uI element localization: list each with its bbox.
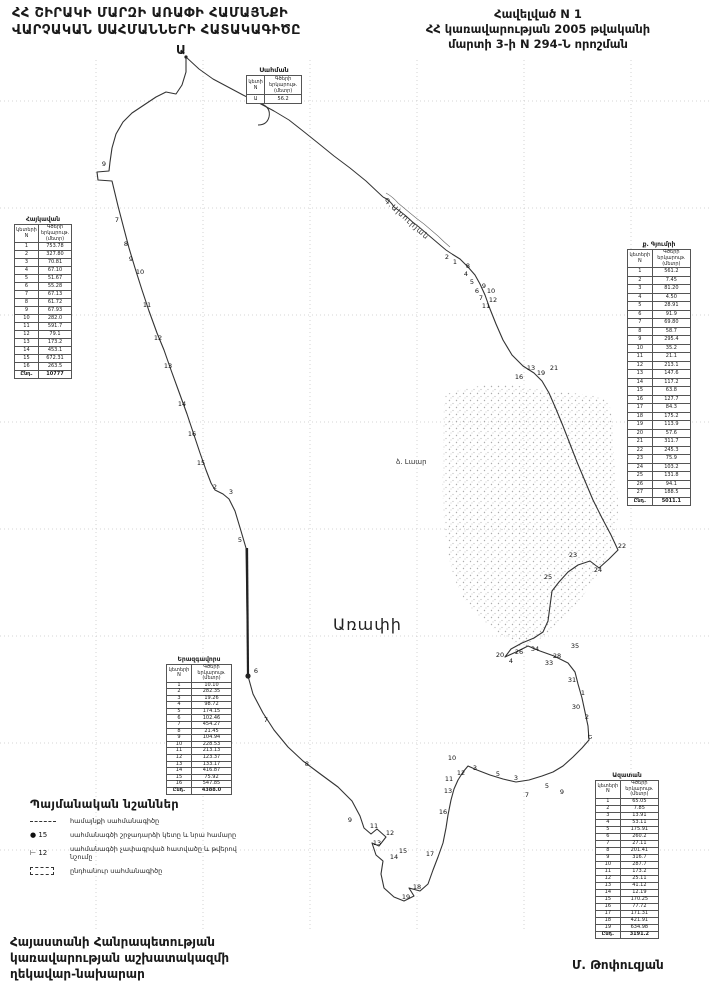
coords-table-southeast: Ազատանկետերի NԳծերի երկարութ. (մետր)165.… [595,772,659,939]
cell-point-number: 22 [628,446,653,455]
table-row: 27.85 [596,805,659,812]
cell-line-length: 7.85 [620,805,658,812]
cell-point-number: 14 [15,347,39,355]
cell-line-length: 170.25 [620,896,658,903]
cell-total-value: 4388.0 [191,788,231,795]
cell-total-value: 10777 [38,371,71,379]
table-row: 9295.4 [628,336,691,345]
col-line-length: Գծերի երկարութ. (մետր) [620,781,658,799]
cell-point-number: 17 [596,910,621,917]
cell-line-length: 173.2 [38,339,71,347]
table-row: 1341.12 [596,882,659,889]
community-name-label: Առափի [333,615,402,634]
cell-line-length: 58.7 [652,327,690,336]
table-row: 8201.41 [596,847,659,854]
lake-label: ձ. Լաար [396,458,427,466]
cell-point-number: 7 [596,840,621,847]
table-row: 2057.6 [628,429,691,438]
table-header-row: կետերի NԳծերի երկարութ. (մետր) [596,781,659,799]
cell-line-length: 753.78 [38,243,71,251]
cell-line-length: 67.93 [38,307,71,315]
legend-item-label: սահմանագծի չափագրված հատվածը և թվերով նշ… [70,845,255,861]
cell-point-number: 27 [628,489,653,498]
stipple-area [443,385,618,648]
cell-line-length: 311.7 [652,438,690,447]
cell-point-number: 6 [628,310,653,319]
cell-point-number: 7 [15,291,39,299]
coords-table-east: ք. Գյումրիկետերի NԳծերի երկարութ. (մետր)… [627,241,691,506]
cell-line-length: 131.8 [652,472,690,481]
cell-line-length: 27.11 [620,840,658,847]
cell-line-length: 67.10 [38,267,71,275]
cell-point-number: 14 [628,378,653,387]
table-row: 467.10 [15,267,72,275]
cell-point-number: 1 [628,268,653,277]
cell-total-value: 3191.2 [620,931,658,938]
cell-line-length: 634.98 [620,924,658,931]
cell-line-length: 174.15 [191,708,231,715]
cell-point-number: 10 [628,344,653,353]
legend-item-label: սահմանագծի շրջադարձի կետը և նրա համարը [70,831,236,839]
cell-line-length: 188.5 [652,489,690,498]
cell-point-number: 3 [596,812,621,819]
cell-line-length: 287.7 [620,861,658,868]
signature-name: Մ. Թոփուզյան [572,958,664,972]
cell-line-length: 35.2 [652,344,690,353]
cell-line-length: 672.31 [38,355,71,363]
coords-table-southwest: Երազգավորսկետերի NԳծերի երկարութ. (մետր)… [166,656,232,795]
cell-line-length: 147.6 [652,370,690,379]
cell-point-number: 5 [628,302,653,311]
table-row: 27.45 [628,276,691,285]
cell-point-number: 11 [15,323,39,331]
annex-line1: Հավելված N 1 [372,7,704,22]
cell-line-length: 127.7 [652,395,690,404]
table-row: 15170.25 [596,896,659,903]
cell-line-length: 75.9 [652,455,690,464]
cell-point-number: 15 [15,355,39,363]
table-row: 5175.91 [596,826,659,833]
cell-point-number: 7 [628,319,653,328]
table-row: 27188.5 [628,489,691,498]
cell-point-number: 17 [628,404,653,413]
table-row: 1225.11 [596,875,659,882]
table-row: 1412.19 [596,889,659,896]
cell-line-length: 263.5 [38,363,71,371]
start-point-label: Ա [176,43,186,57]
cell-line-length: 453.1 [38,347,71,355]
table-row: 858.7 [628,327,691,336]
table-row: 21311.7 [628,438,691,447]
table-row: 967.93 [15,307,72,315]
table-header-row: կետի NԳծերի երկարութ. (մետր) [247,76,302,95]
col-point-number: կետի N [247,76,265,95]
cell-point-number: 24 [628,463,653,472]
table-title: Սահման [246,66,302,74]
cell-line-length: 91.9 [652,310,690,319]
footer-line1: Հայաստանի Հանրապետության [10,934,229,950]
table-row: 13173.2 [15,339,72,347]
cell-line-length: 13.91 [620,812,658,819]
cell-point-number: 5 [596,826,621,833]
table-row: 1563.8 [628,387,691,396]
cell-line-length: 51.67 [38,275,71,283]
table-row: 14453.1 [15,347,72,355]
cell-point-number: 14 [596,889,621,896]
table-row: 44.50 [628,293,691,302]
cell-line-length: 94.1 [652,480,690,489]
table-row: 12213.1 [628,361,691,370]
table-row: 691.9 [628,310,691,319]
table-row: 25131.8 [628,472,691,481]
legend-item-label: ընդհանուր սահմանագիծը [70,867,162,875]
cell-point-number: 1 [596,798,621,805]
page-title-line2: ՎԱՐՉԱԿԱՆ ՍԱՀՄԱՆՆԵՐԻ ՀԱՏԱԿԱԳԻԾԸ [12,22,301,39]
cell-point-number: 3 [15,259,39,267]
table-row: 1279.1 [15,331,72,339]
table-row: 14117.2 [628,378,691,387]
table-row: 24103.2 [628,463,691,472]
table-row: 11591.7 [15,323,72,331]
table-row: Ա56.2 [247,95,302,104]
cell-line-length: 561.2 [652,268,690,277]
table-row: 1677.72 [596,903,659,910]
col-point-number: կետերի N [15,225,39,243]
cell-point-number: 12 [596,875,621,882]
legend-item: ● 15սահմանագծի շրջադարձի կետը և նրա համա… [30,831,255,839]
cell-line-length: 67.13 [38,291,71,299]
table-row: 2375.9 [628,455,691,464]
col-line-length: Գծերի երկարութ. (մետր) [191,665,231,683]
cell-point-number: 10 [15,315,39,323]
footer-line2: կառավարության աշխատակազմի [10,950,229,966]
cell-total-label: Ընդ. [15,371,39,379]
legend-item: ընդհանուր սահմանագիծը [30,867,255,875]
legend-item: համայնքի սահմանագիծը [30,817,255,825]
table-row: 5174.15 [167,708,232,715]
cell-point-number: 10 [596,861,621,868]
cell-line-length: 113.9 [652,421,690,430]
table-header-row: կետերի NԳծերի երկարութ. (մետր) [15,225,72,243]
thick-segment [247,548,248,676]
cell-line-length: 63.8 [652,387,690,396]
table-row: 2282.35 [167,689,232,696]
coords-table-west: Հայկավանկետերի NԳծերի երկարութ. (մետր)17… [14,216,72,379]
cell-line-length: 103.2 [652,463,690,472]
node-blob [245,673,250,678]
cell-point-number: 8 [596,847,621,854]
table-row: 1035.2 [628,344,691,353]
cell-total-label: Ընդ. [628,497,653,506]
table-row: 10282.0 [15,315,72,323]
cell-point-number: 15 [596,896,621,903]
col-point-number: կետերի N [596,781,621,799]
cell-point-number: 16 [596,903,621,910]
cell-point-number: 8 [628,327,653,336]
cell-point-number: 13 [628,370,653,379]
point-symbol: ⊢ 12 [30,849,64,857]
table-row: 370.81 [15,259,72,267]
cell-line-length: 295.4 [652,336,690,345]
footer-line3: ղեկավար-նախարար [10,966,229,982]
page-title: ՀՀ ՇԻՐԱԿԻ ՄԱՐԶԻ ԱՌԱՓԻ ՀԱՄԱՅՆՔԻ ՎԱՐՉԱԿԱՆ … [12,5,301,39]
page-title-line1: ՀՀ ՇԻՐԱԿԻ ՄԱՐԶԻ ԱՌԱՓԻ ՀԱՄԱՅՆՔԻ [12,5,301,22]
annex-line3: մարտի 3-ի N 294-Ն որոշման [372,37,704,52]
cell-line-length: 69.80 [652,319,690,328]
table-row: 16127.7 [628,395,691,404]
cell-line-length: 117.2 [652,378,690,387]
cell-line-length: 245.3 [652,446,690,455]
cell-line-length: 53.11 [620,819,658,826]
table-row: 15672.31 [15,355,72,363]
cell-line-length: 316.7 [620,854,658,861]
cell-line-length: 84.3 [652,404,690,413]
table-row: 769.80 [628,319,691,328]
table-row: 2694.1 [628,480,691,489]
table-row: 551.67 [15,275,72,283]
table-row: 1561.2 [628,268,691,277]
col-line-length: Գծերի երկարութ. (մետր) [652,250,690,268]
cell-line-length: 171.31 [620,910,658,917]
cell-point-number: 6 [15,283,39,291]
annex-reference: Հավելված N 1 ՀՀ կառավարության 2005 թվակա… [372,7,704,52]
cell-point-number: Ա [247,95,265,104]
cell-point-number: 15 [628,387,653,396]
cell-point-number: 4 [596,819,621,826]
cell-line-length: 21.1 [652,353,690,362]
cell-line-length: 77.72 [620,903,658,910]
cell-point-number: 13 [15,339,39,347]
cell-point-number: 4 [15,267,39,275]
cell-point-number: 4 [628,293,653,302]
cell-point-number: 20 [628,429,653,438]
cell-line-length: 56.2 [265,95,302,104]
cell-point-number: 13 [596,882,621,889]
table-row: 381.20 [628,285,691,294]
table-row: 861.72 [15,299,72,307]
cell-line-length: 213.1 [652,361,690,370]
col-point-number: կետերի N [167,665,192,683]
legend-item-label: համայնքի սահմանագիծը [70,817,159,825]
table-row: 655.28 [15,283,72,291]
table-row: 453.11 [596,819,659,826]
cell-point-number: 2 [596,805,621,812]
table-row: 13147.6 [628,370,691,379]
table-row: 6102.46 [167,715,232,722]
table-row: 165.05 [596,798,659,805]
cell-line-length: 81.20 [652,285,690,294]
legend-title: Պայմանական նշաններ [30,797,255,811]
col-line-length: Գծերի երկարութ. (մետր) [265,76,302,95]
annex-line2: ՀՀ կառավարության 2005 թվականի [372,22,704,37]
table-row: 16263.5 [15,363,72,371]
boundary-line-symbol [30,821,64,822]
table-title: Ազատան [595,772,659,779]
cell-point-number: 18 [628,412,653,421]
table-row: 7454.27 [167,722,232,729]
cell-line-length: 282.0 [38,315,71,323]
legend-items: համայնքի սահմանագիծը● 15սահմանագծի շրջադ… [30,817,255,875]
table-total-row: Ընդ.10777 [15,371,72,379]
cell-line-length: 61.72 [38,299,71,307]
table-row: 2327.80 [15,251,72,259]
cell-point-number: 11 [628,353,653,362]
table-row: 313.91 [596,812,659,819]
cell-point-number: 1 [15,243,39,251]
table-row: 11173.2 [596,868,659,875]
cell-line-length: 175.91 [620,826,658,833]
cell-line-length: 421.91 [620,917,658,924]
table-row: 1121.1 [628,353,691,362]
cell-point-number: 12 [628,361,653,370]
cell-total-label: Ընդ. [596,931,621,938]
table-row: 19113.9 [628,421,691,430]
cell-point-number: 16 [628,395,653,404]
legend-item: ⊢ 12սահմանագծի չափագրված հատվածը և թվերո… [30,845,255,861]
table-row: 17171.31 [596,910,659,917]
col-line-length: Գծերի երկարութ. (մետր) [38,225,71,243]
table-row: 19634.98 [596,924,659,931]
cell-point-number: 23 [628,455,653,464]
table-row: 319.26 [167,695,232,702]
cell-point-number: 3 [628,285,653,294]
table-title: ք. Գյումրի [627,241,691,248]
cell-line-length: 57.6 [652,429,690,438]
table-title: Երազգավորս [166,656,232,663]
cell-point-number: 2 [15,251,39,259]
cell-line-length: 327.80 [38,251,71,259]
table-total-row: Ընդ.5011.1 [628,497,691,506]
cell-point-number: 5 [167,708,192,715]
cell-line-length: 4.50 [652,293,690,302]
cell-line-length: 28.91 [652,302,690,311]
cell-point-number: 19 [596,924,621,931]
cell-line-length: 260.2 [620,833,658,840]
common-boundary-symbol [30,867,64,875]
table-row: 18175.2 [628,412,691,421]
cell-point-number: 11 [596,868,621,875]
table-row: 22245.3 [628,446,691,455]
cell-point-number: 9 [596,854,621,861]
table-title: Հայկավան [14,216,72,223]
col-point-number: կետերի N [628,250,653,268]
cell-line-length: 41.12 [620,882,658,889]
cell-point-number: 2 [628,276,653,285]
cell-line-length: 55.28 [38,283,71,291]
cell-total-label: Ընդ. [167,788,192,795]
cell-point-number: 9 [15,307,39,315]
cell-line-length: 175.2 [652,412,690,421]
legend: Պայմանական նշաններ համայնքի սահմանագիծը●… [30,797,255,881]
cell-line-length: 591.7 [38,323,71,331]
table-row: 767.13 [15,291,72,299]
river-path-offset [386,193,450,247]
table-row: 9316.7 [596,854,659,861]
table-total-row: Ընդ.3191.2 [596,931,659,938]
table-total-row: Ընդ.4388.0 [167,788,232,795]
coords-table-junction: Սահմանկետի NԳծերի երկարութ. (մետր)Ա56.2 [246,66,302,104]
table-row: 1784.3 [628,404,691,413]
table-header-row: կետերի NԳծերի երկարութ. (մետր) [167,665,232,683]
cell-total-value: 5011.1 [652,497,690,506]
table-row: 10287.7 [596,861,659,868]
cell-line-length: 79.1 [38,331,71,339]
table-row: 498.72 [167,702,232,709]
cell-point-number: 21 [628,438,653,447]
table-row: 821.45 [167,728,232,735]
cell-line-length: 201.41 [620,847,658,854]
cell-point-number: 18 [596,917,621,924]
cell-line-length: 65.05 [620,798,658,805]
cell-point-number: 16 [15,363,39,371]
cell-point-number: 8 [15,299,39,307]
cell-point-number: 9 [628,336,653,345]
cell-line-length: 25.11 [620,875,658,882]
table-header-row: կետերի NԳծերի երկարութ. (մետր) [628,250,691,268]
footer-signatory-title: Հայաստանի Հանրապետության կառավարության ա… [10,934,229,982]
point-symbol: ● 15 [30,831,64,839]
table-row: 110.10 [167,682,232,689]
cell-line-length: 7.45 [652,276,690,285]
cell-point-number: 12 [15,331,39,339]
cell-point-number: 5 [15,275,39,283]
table-row: 528.91 [628,302,691,311]
cell-line-length: 173.2 [620,868,658,875]
cell-point-number: 6 [596,833,621,840]
cell-line-length: 12.19 [620,889,658,896]
table-row: 727.11 [596,840,659,847]
table-row: 1753.78 [15,243,72,251]
cell-point-number: 19 [628,421,653,430]
table-row: 6260.2 [596,833,659,840]
cell-point-number: 25 [628,472,653,481]
table-row: 18421.91 [596,917,659,924]
cell-line-length: 70.81 [38,259,71,267]
cell-point-number: 26 [628,480,653,489]
